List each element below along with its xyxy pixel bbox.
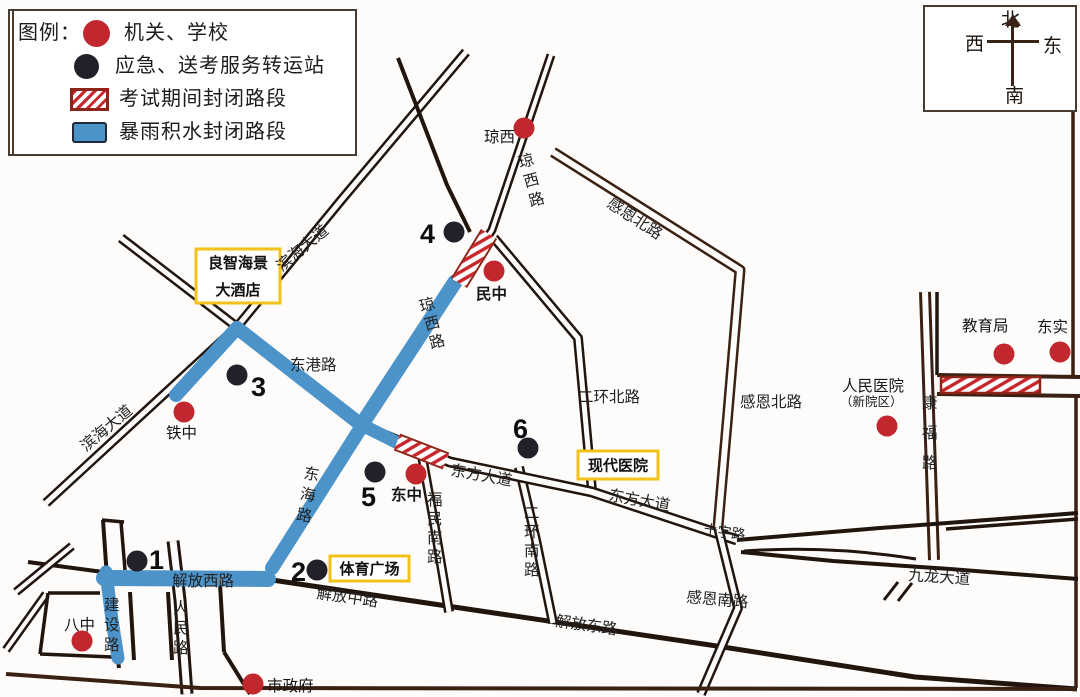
road-label: 东港路 xyxy=(290,356,337,374)
poi-label: 东实 xyxy=(1037,318,1068,336)
boxed-label: 体育广场 xyxy=(339,560,399,578)
black-dot-icon xyxy=(74,54,99,79)
poi-dot-red xyxy=(243,674,264,695)
transfer-station-dot xyxy=(365,462,386,483)
road-label: 感恩南路 xyxy=(686,588,750,611)
poi-label: 铁中 xyxy=(166,424,197,442)
legend-item: 考试期间封闭路段 xyxy=(10,83,355,116)
flood-swatch-icon xyxy=(72,122,107,143)
road-line xyxy=(220,584,224,652)
road-core xyxy=(16,546,72,592)
station-number: 5 xyxy=(361,482,376,512)
road-label: 解放中路 xyxy=(315,584,379,611)
poi-dot-red xyxy=(994,344,1015,365)
road-line xyxy=(40,654,112,657)
flooded-road-segment xyxy=(362,282,455,424)
legend-item-label: 暴雨积水封闭路段 xyxy=(119,116,287,149)
boxed-label: 现代医院 xyxy=(588,457,648,475)
road-line xyxy=(737,513,1078,540)
station-number: 4 xyxy=(420,219,435,249)
road-label: 解放西路 xyxy=(172,572,235,590)
road-label: 人民路 xyxy=(173,599,189,657)
station-number: 6 xyxy=(513,414,528,444)
legend-item-label: 应急、送考服务转运站 xyxy=(115,50,325,83)
road-line xyxy=(130,592,134,660)
hatch-swatch-icon xyxy=(70,88,109,111)
legend-item-label: 机关、学校 xyxy=(124,17,229,50)
flooded-road-segment xyxy=(368,428,396,442)
poi-dot-red xyxy=(174,402,195,423)
road-line xyxy=(121,522,125,570)
road-label: 解放东路 xyxy=(554,612,618,639)
legend-item: 暴雨积水封闭路段 xyxy=(10,116,355,149)
road-label: 感恩北路 xyxy=(740,393,803,411)
legend-item-label: 考试期间封闭路段 xyxy=(119,83,287,116)
station-number: 2 xyxy=(291,557,306,587)
compass-arrow-icon xyxy=(1005,14,1021,26)
poi-label: 东中 xyxy=(391,485,422,504)
flooded-road-segment xyxy=(272,426,362,568)
poi-dot-red xyxy=(484,261,505,282)
compass-west: 西 xyxy=(965,29,984,56)
legend-item: 应急、送考服务转运站 xyxy=(10,50,355,83)
transfer-station-dot xyxy=(444,222,465,243)
poi-dot-red xyxy=(72,631,93,652)
poi-label: 民中 xyxy=(476,284,507,303)
road-line xyxy=(168,592,172,660)
legend-box: 图例： 机关、学校 应急、送考服务转运站 考试期间封闭路段 暴雨积水封闭路段 xyxy=(8,9,357,156)
compass-south: 南 xyxy=(1005,81,1024,108)
boxed-label: 良智海景 xyxy=(208,254,268,272)
station-number: 3 xyxy=(251,372,266,402)
station-number: 1 xyxy=(149,545,164,575)
road-gap-ticks xyxy=(884,582,912,601)
poi-label: 教育局 xyxy=(962,317,1009,335)
road-label: 建设路 xyxy=(104,596,120,654)
poi-dot-red xyxy=(1050,342,1071,363)
road-label: 二环北路 xyxy=(578,388,641,406)
boxed-label: 大酒店 xyxy=(215,281,260,299)
transfer-station-dot xyxy=(227,365,248,386)
transfer-station-dot xyxy=(127,551,148,572)
transfer-station-dot xyxy=(307,560,328,581)
road-label: 康福路 xyxy=(922,394,938,472)
legend-item: 图例： 机关、学校 xyxy=(10,17,355,50)
legend-title: 图例： xyxy=(18,17,81,50)
red-dot-icon xyxy=(83,20,110,47)
road-line xyxy=(102,520,124,522)
road-label: 琼西路 xyxy=(516,150,546,210)
road-label: 滨海大道 xyxy=(273,221,332,275)
road-label: 十字路 xyxy=(703,521,747,543)
poi-dot-red xyxy=(877,416,898,437)
compass-east: 东 xyxy=(1043,31,1062,58)
flooded-road-segment xyxy=(176,328,237,395)
poi-label: （新院区） xyxy=(840,394,903,409)
poi-label: 人民医院 xyxy=(842,376,904,395)
closed-road-segment xyxy=(397,442,446,461)
road-line xyxy=(937,394,1080,396)
compass-box: 北 西 东 南 xyxy=(923,5,1077,112)
poi-dot-red xyxy=(514,118,535,139)
exam-traffic-map: 良智海景大酒店现代医院体育广场滨海大道滨海大道东港路解放西路解放中路解放东路东方… xyxy=(0,0,1080,697)
closed-road-segment xyxy=(941,377,1040,393)
poi-label: 市政府 xyxy=(267,677,314,695)
poi-dot-red xyxy=(406,464,427,485)
compass-needle xyxy=(1011,24,1014,86)
road-line xyxy=(701,527,738,694)
poi-label: 琼西 xyxy=(484,128,515,146)
